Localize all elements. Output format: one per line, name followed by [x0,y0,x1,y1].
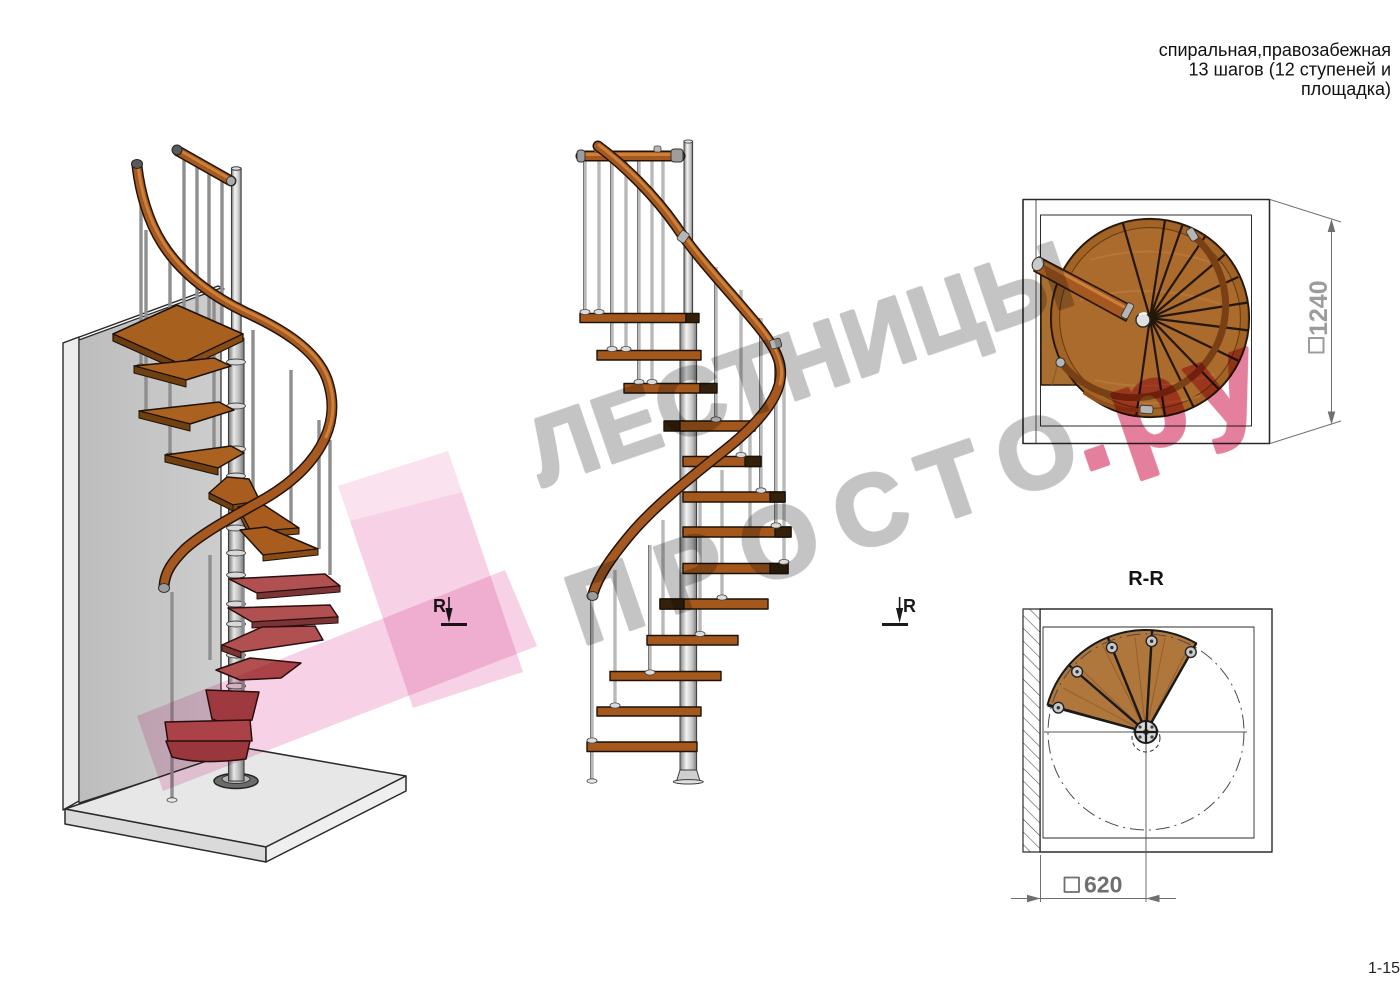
svg-text:1240: 1240 [1305,280,1333,336]
svg-text:спиральная,правозабежная: спиральная,правозабежная [1159,40,1391,60]
svg-text:R-R: R-R [1128,568,1164,590]
svg-text:13 шагов (12 ступеней и: 13 шагов (12 ступеней и [1189,60,1392,80]
svg-text:площадка): площадка) [1301,79,1391,99]
svg-text:R: R [903,596,916,616]
svg-text:1-15: 1-15 [1368,960,1400,977]
svg-text:620: 620 [1084,872,1122,898]
